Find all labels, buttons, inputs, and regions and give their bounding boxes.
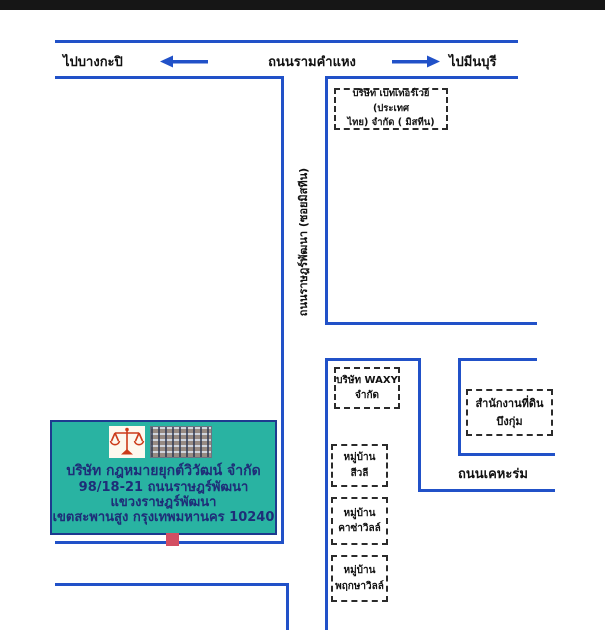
destination-minburi-label: ไปมีนบุรี <box>449 51 496 72</box>
company-address-line1: 98/18-21 ถนนราษฎร์พัฒนา <box>52 480 275 495</box>
company-address-card: บริษัท กฎหมายยุกต์วิวัฒน์ จำกัด 98/18-21… <box>50 420 277 535</box>
ramkhamhaeng-road-bottom-edge-left <box>55 76 284 79</box>
ratphatthana-road-label: ถนนราษฎร์พัฒนา (ซอยมิสทีน) <box>294 157 312 327</box>
location-marker <box>166 533 179 546</box>
land-office-line2: บึงกุ่ม <box>496 413 522 430</box>
arrow-right-icon <box>390 55 440 68</box>
village-casaville-line2: คาซ่าวิลล์ <box>338 521 381 537</box>
betterway-line1: บริษัท เบทเทอร์เวย์ (ประเทศ <box>336 87 446 116</box>
arrow-left-icon <box>160 55 210 68</box>
kheharom-road-north-edge <box>458 453 555 456</box>
directions-map: ไปบางกะปิ ถนนรามคำแหง ไปมีนบุรี ถนนราษฎร… <box>0 0 605 630</box>
kheharom-road-south-edge <box>418 489 555 492</box>
company-street-bottom-edge <box>55 583 289 586</box>
waxy-company-box: บริษัท WAXY จำกัด <box>334 367 400 409</box>
village-sivalee-box: หมู่บ้าน สีวลี <box>331 444 388 487</box>
waxy-block-top-edge <box>328 358 421 361</box>
village-pruksaville-line1: หมู่บ้าน <box>344 563 376 579</box>
company-address-line3: เขตสะพานสูง กรุงเทพมหานคร 10240 <box>52 510 275 525</box>
kheharom-road-label: ถนนเคหะร่ม <box>458 463 528 484</box>
top-border-bar <box>0 0 605 10</box>
village-sivalee-line2: สีวลี <box>351 466 369 482</box>
land-office-block-left-edge <box>458 358 461 456</box>
company-name: บริษัท กฎหมายยุกต์วิวัฒน์ จำกัด <box>52 463 275 480</box>
ramkhamhaeng-road-bottom-edge-right <box>328 76 518 79</box>
building-photo <box>150 426 212 458</box>
ratphatthana-road-right-edge-lower <box>325 358 328 630</box>
ratphatthana-road-left-edge-upper <box>281 76 284 544</box>
ratphatthana-road-right-edge-upper <box>325 76 328 325</box>
village-casaville-box: หมู่บ้าน คาซ่าวิลล์ <box>331 497 388 545</box>
land-office-box: สำนักงานที่ดิน บึงกุ่ม <box>466 389 553 436</box>
village-pruksaville-box: หมู่บ้าน พฤกษาวิลล์ <box>331 555 388 602</box>
village-sivalee-line1: หมู่บ้าน <box>344 450 376 466</box>
scales-of-justice-logo <box>109 426 145 458</box>
betterway-block-bottom-edge <box>325 322 537 325</box>
betterway-line2: ไทย) จำกัด ( มิสทีน) <box>347 116 434 131</box>
ramkhamhaeng-road-top-edge <box>55 40 518 43</box>
ratphatthana-road-left-edge-lower <box>286 583 289 630</box>
village-casaville-line1: หมู่บ้าน <box>344 506 376 522</box>
waxy-line1: บริษัท WAXY <box>336 373 398 389</box>
ramkhamhaeng-road-label: ถนนรามคำแหง <box>252 51 372 72</box>
betterway-company-box: บริษัท เบทเทอร์เวย์ (ประเทศ ไทย) จำกัด (… <box>334 88 448 130</box>
company-address-line2: แขวงราษฎร์พัฒนา <box>52 495 275 510</box>
waxy-line2: จำกัด <box>355 388 379 404</box>
village-pruksaville-line2: พฤกษาวิลล์ <box>335 579 384 595</box>
destination-bangkapi-label: ไปบางกะปิ <box>63 51 123 72</box>
land-office-block-top-edge <box>458 358 537 361</box>
land-office-line1: สำนักงานที่ดิน <box>475 395 543 412</box>
waxy-block-right-edge <box>418 358 421 492</box>
